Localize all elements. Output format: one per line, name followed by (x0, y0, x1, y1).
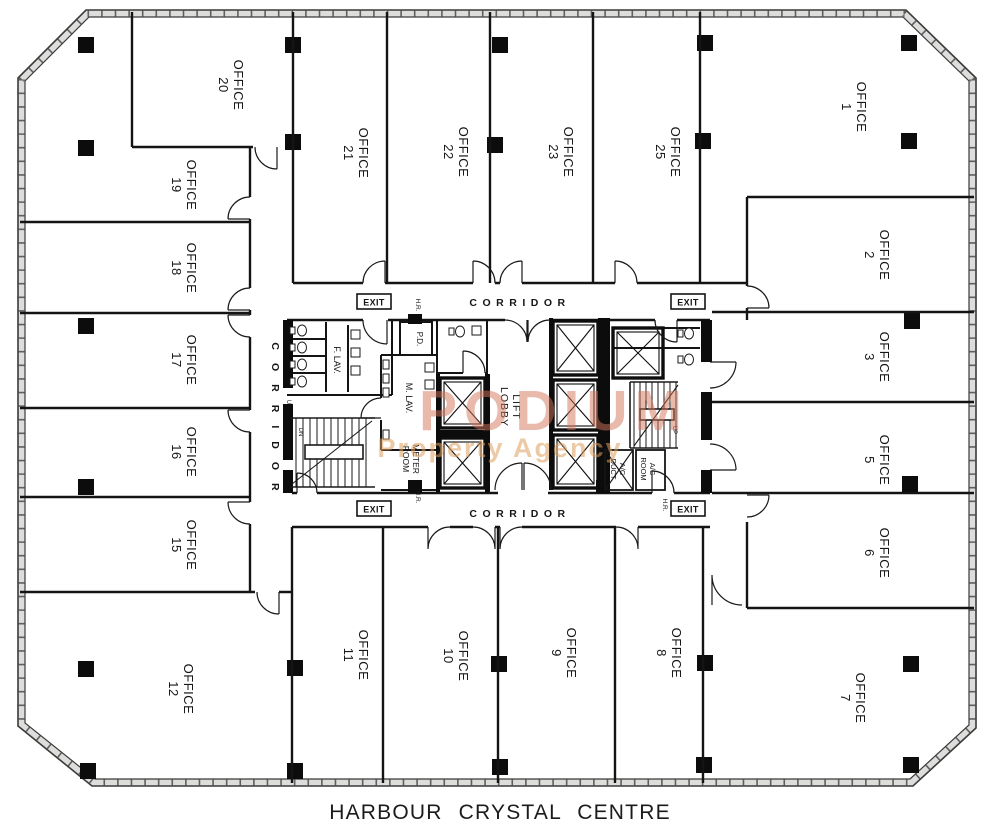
room-label-m-lav: M. LAV. (404, 383, 414, 414)
stair-label-dn-main: DN (297, 428, 303, 437)
stair-label-up-main: UP (285, 400, 291, 408)
exit-sign-bottom-right: EXIT (677, 505, 699, 515)
floor-plan: OFFICE20 OFFICE19 OFFICE18 OFFICE17 OFFI… (0, 0, 1000, 828)
room-label-f-lav: F. LAV. (332, 346, 342, 374)
hose-reel-label-top: H.R. (414, 299, 421, 312)
hose-reel-label-bottom: H.R. (414, 491, 421, 504)
exit-sign-top-left: EXIT (363, 298, 385, 308)
exit-sign-top-right: EXIT (677, 298, 699, 308)
watermark-line2: Property Agency (377, 433, 622, 463)
exit-sign-bottom-left: EXIT (363, 505, 385, 515)
corridor-label-bottom: CORRIDOR (469, 508, 570, 520)
room-label-pd: P.D. (415, 332, 424, 347)
floor-plan-page: OFFICE20 OFFICE19 OFFICE18 OFFICE17 OFFI… (0, 0, 1000, 828)
hose-reel-label-right: H.R. (661, 499, 668, 512)
corridor-label-top: CORRIDOR (469, 297, 570, 309)
corridor-label-left: CORRIDOR (269, 342, 281, 503)
plan-title: HARBOUR CRYSTAL CENTRE (329, 801, 671, 824)
